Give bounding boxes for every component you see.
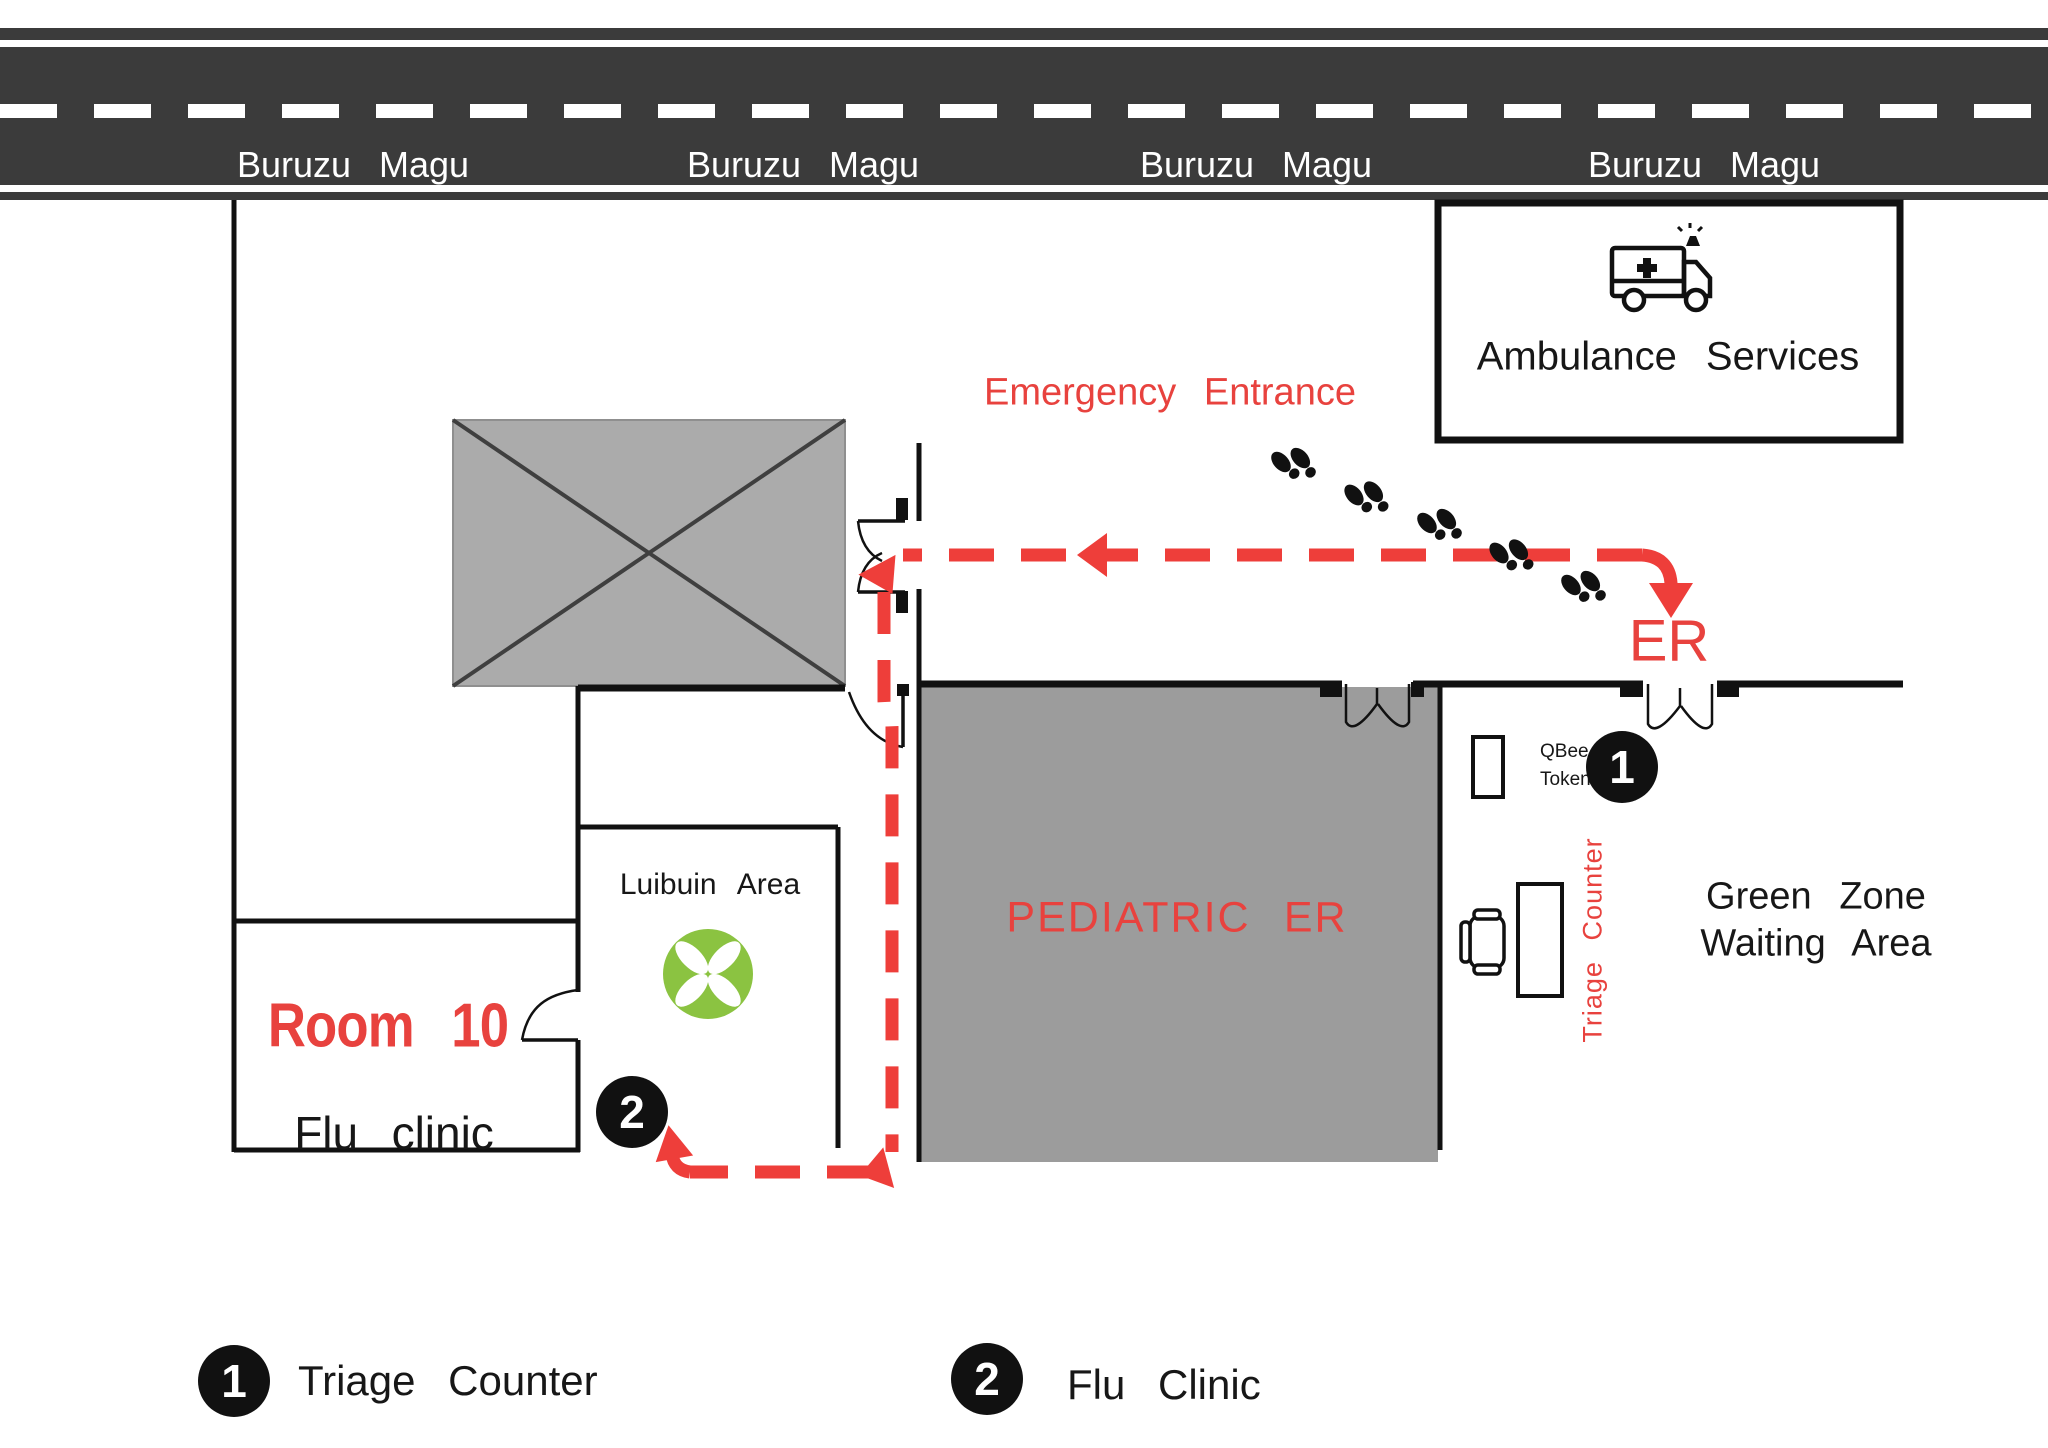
legend-marker-1: 1 <box>198 1345 270 1417</box>
chair-icon <box>1461 910 1504 974</box>
marker-1-triage: 1 <box>1586 731 1658 803</box>
emergency-entrance-label: Emergency Entrance <box>984 372 1356 415</box>
pediatric-er-label: PEDIATRIC ER <box>1006 894 1347 943</box>
qbee-token-label-line1: QBee <box>1540 741 1589 763</box>
footprints-icon <box>1267 437 1611 614</box>
triage-desk-icon <box>1461 884 1562 996</box>
door-post <box>1411 682 1424 697</box>
room10-label: Room 10 <box>268 991 508 1062</box>
triage-counter-label: Triage Counter <box>1578 837 1609 1042</box>
hospital-floor-plan: Buruzu Magu Buruzu Magu Buruzu Magu Buru… <box>0 0 2048 1448</box>
legend-label-flu: Flu Clinic <box>1067 1361 1261 1409</box>
door-jamb <box>896 498 908 520</box>
plant-icon <box>663 929 753 1019</box>
ambulance-services-label: Ambulance Services <box>1477 335 1860 380</box>
qbee-token-label-line2: Token <box>1540 769 1591 791</box>
door-post <box>1320 682 1342 697</box>
arrow-left-icon <box>1077 533 1107 577</box>
door-jamb <box>896 591 908 613</box>
door-post <box>1717 682 1739 697</box>
qbee-token-stand <box>1473 737 1503 797</box>
er-label: ER <box>1629 608 1710 675</box>
legend-label-triage: Triage Counter <box>298 1357 598 1405</box>
ambulance-services-building <box>1438 203 1900 440</box>
green-zone-label-line2: Waiting Area <box>1700 923 1931 966</box>
door-post <box>1620 682 1643 697</box>
floor-plan-drawing <box>0 0 2048 1448</box>
flu-clinic-room-label: Flu clinic <box>294 1106 494 1160</box>
marker-2-flu-clinic: 2 <box>596 1076 668 1148</box>
legend-marker-2: 2 <box>951 1343 1023 1415</box>
luibuin-area-label: Luibuin Area <box>620 868 800 902</box>
green-zone-label-line1: Green Zone <box>1706 876 1926 919</box>
